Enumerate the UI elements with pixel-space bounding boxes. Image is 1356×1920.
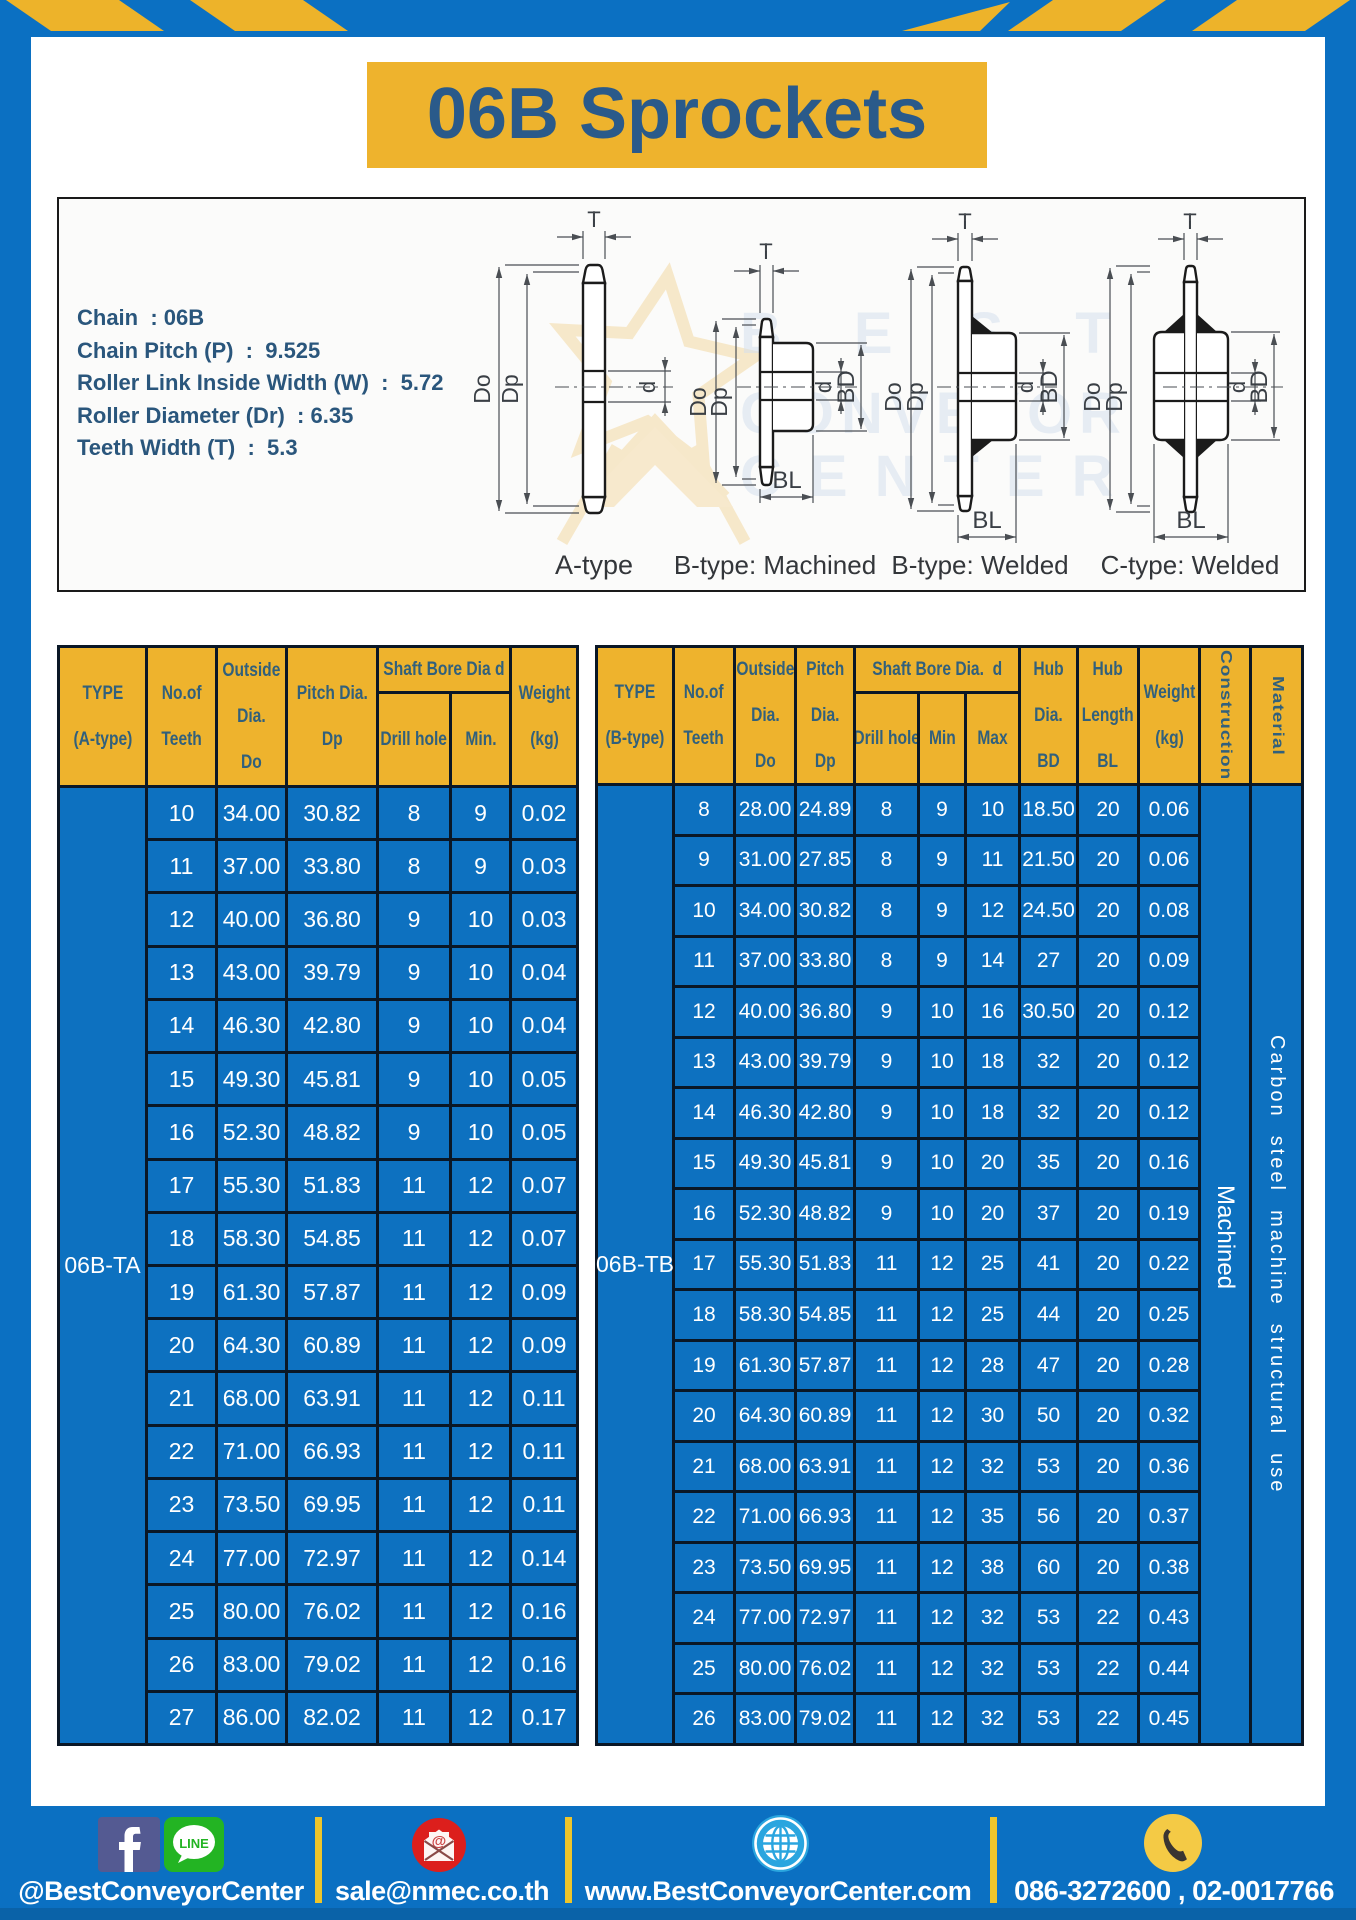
svg-text:T: T <box>587 207 600 232</box>
svg-text:B-type: Machined: B-type: Machined <box>674 550 876 580</box>
svg-text:BL: BL <box>972 507 1001 534</box>
svg-text:Dp: Dp <box>497 374 523 403</box>
svg-text:A-type: A-type <box>555 550 633 580</box>
svg-text:T: T <box>759 239 772 264</box>
svg-text:Do: Do <box>469 374 495 403</box>
svg-text:BL: BL <box>772 467 801 494</box>
svg-text:B-type: Welded: B-type: Welded <box>891 550 1068 580</box>
svg-text:Dp: Dp <box>1101 382 1127 411</box>
svg-text:LINE: LINE <box>179 1836 209 1851</box>
svg-text:BL: BL <box>1176 507 1205 534</box>
svg-text:C-type: Welded: C-type: Welded <box>1101 550 1280 580</box>
svg-text:T: T <box>958 209 971 234</box>
svg-text:Dp: Dp <box>902 382 928 411</box>
svg-text:Dp: Dp <box>706 387 732 416</box>
svg-text:T: T <box>1183 209 1196 234</box>
